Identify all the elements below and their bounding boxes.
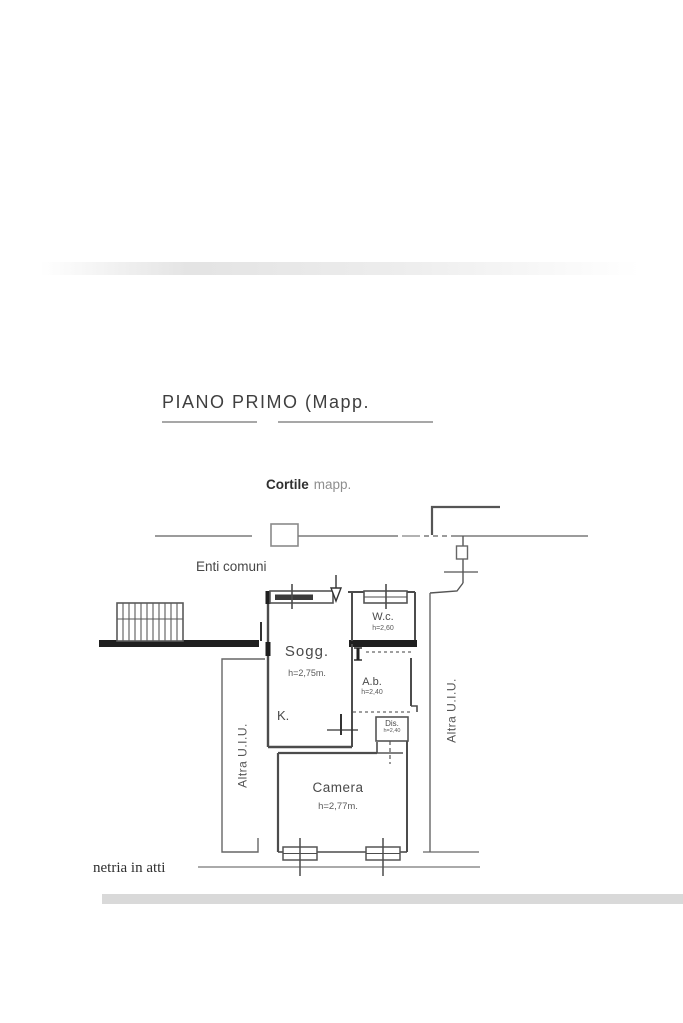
gate-symbol (457, 546, 468, 559)
room-height-soggiorno: h=2,75m. (277, 668, 337, 678)
courtyard-label-suffix: mapp. (314, 477, 352, 492)
pillar (271, 524, 298, 546)
window-symbol-soggiorno (270, 584, 333, 609)
room-height-camera: h=2,77m. (308, 801, 368, 812)
window-symbol-camera-left (283, 838, 317, 876)
courtyard-label: Cortilemapp. (266, 477, 351, 492)
room-height-wc: h=2,60 (363, 625, 403, 632)
room-height-disimpegno: h=2,40 (378, 728, 406, 734)
adjacent-unit-label-right: Altra U.I.U. (445, 666, 460, 756)
room-label-kitchen: K. (277, 708, 289, 723)
page-title: PIANO PRIMO (Mapp. (162, 392, 370, 413)
footer-note: netria in atti (93, 860, 165, 877)
door-symbol-dis-camera (377, 741, 403, 764)
room-height-antibagno: h=2,40 (352, 689, 392, 696)
courtyard-wall (155, 507, 588, 546)
room-label-antibagno: A.b. (352, 676, 392, 688)
staircase (117, 603, 183, 641)
courtyard-corner-wall (432, 507, 500, 535)
floorplan-scan-page: PIANO PRIMO (Mapp. Cortilemapp. Enti com… (0, 0, 683, 1023)
courtyard-label-main: Cortile (266, 477, 309, 492)
window-symbol-camera-right (366, 838, 400, 876)
room-label-camera: Camera (308, 780, 368, 795)
entrance-passage (430, 536, 478, 593)
scan-grey-band (102, 894, 683, 904)
room-label-disimpegno: Dis. (378, 719, 406, 728)
door-jamb-symbol (354, 648, 362, 660)
room-label-wc: W.c. (363, 611, 403, 623)
door-symbol-k-dis (327, 714, 358, 735)
adjacent-unit-label-left: Altra U.I.U. (236, 711, 251, 801)
window-symbol-wc (364, 584, 407, 609)
room-label-soggiorno: Sogg. (277, 643, 337, 660)
common-areas-label: Enti comuni (196, 559, 267, 574)
